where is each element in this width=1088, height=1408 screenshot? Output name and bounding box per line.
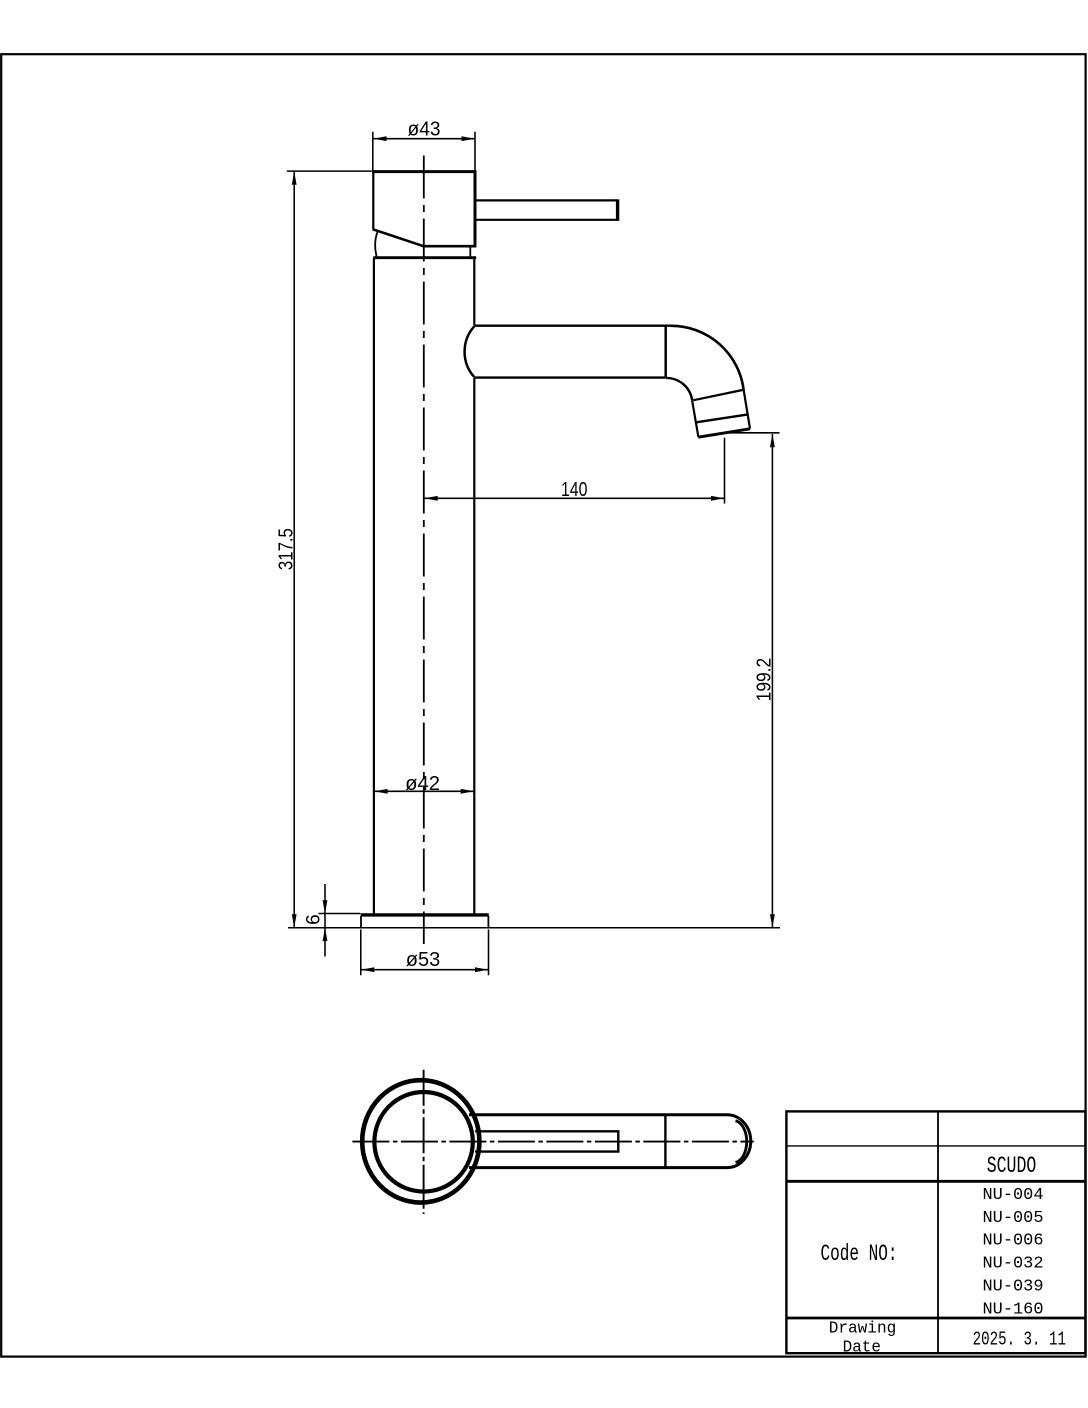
svg-text:Date: Date bbox=[843, 1338, 881, 1357]
svg-text:6: 6 bbox=[303, 914, 324, 925]
svg-text:ø42: ø42 bbox=[405, 773, 440, 795]
svg-text:Code NO:: Code NO: bbox=[821, 1241, 898, 1268]
svg-text:2025. 3. 11: 2025. 3. 11 bbox=[973, 1328, 1066, 1350]
svg-text:NU-004: NU-004 bbox=[983, 1185, 1044, 1204]
svg-text:NU-005: NU-005 bbox=[983, 1208, 1044, 1227]
svg-text:317.5: 317.5 bbox=[275, 528, 297, 570]
svg-text:ø53: ø53 bbox=[406, 949, 441, 971]
svg-text:140: 140 bbox=[561, 479, 588, 501]
svg-text:NU-039: NU-039 bbox=[983, 1276, 1044, 1295]
svg-text:NU-160: NU-160 bbox=[983, 1300, 1044, 1319]
svg-text:Drawing: Drawing bbox=[829, 1318, 897, 1337]
svg-text:199.2: 199.2 bbox=[754, 658, 776, 702]
svg-text:SCUDO: SCUDO bbox=[987, 1153, 1037, 1180]
svg-text:NU-032: NU-032 bbox=[983, 1253, 1044, 1272]
svg-text:NU-006: NU-006 bbox=[983, 1231, 1044, 1250]
svg-text:ø43: ø43 bbox=[408, 118, 441, 140]
